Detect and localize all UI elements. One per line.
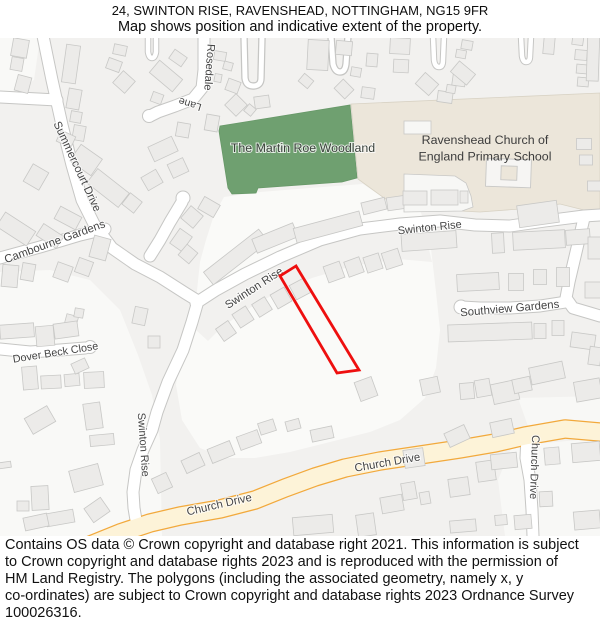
svg-text:Church Drive: Church Drive [527,435,541,500]
svg-text:The Martin Roe Woodland: The Martin Roe Woodland [231,141,376,155]
